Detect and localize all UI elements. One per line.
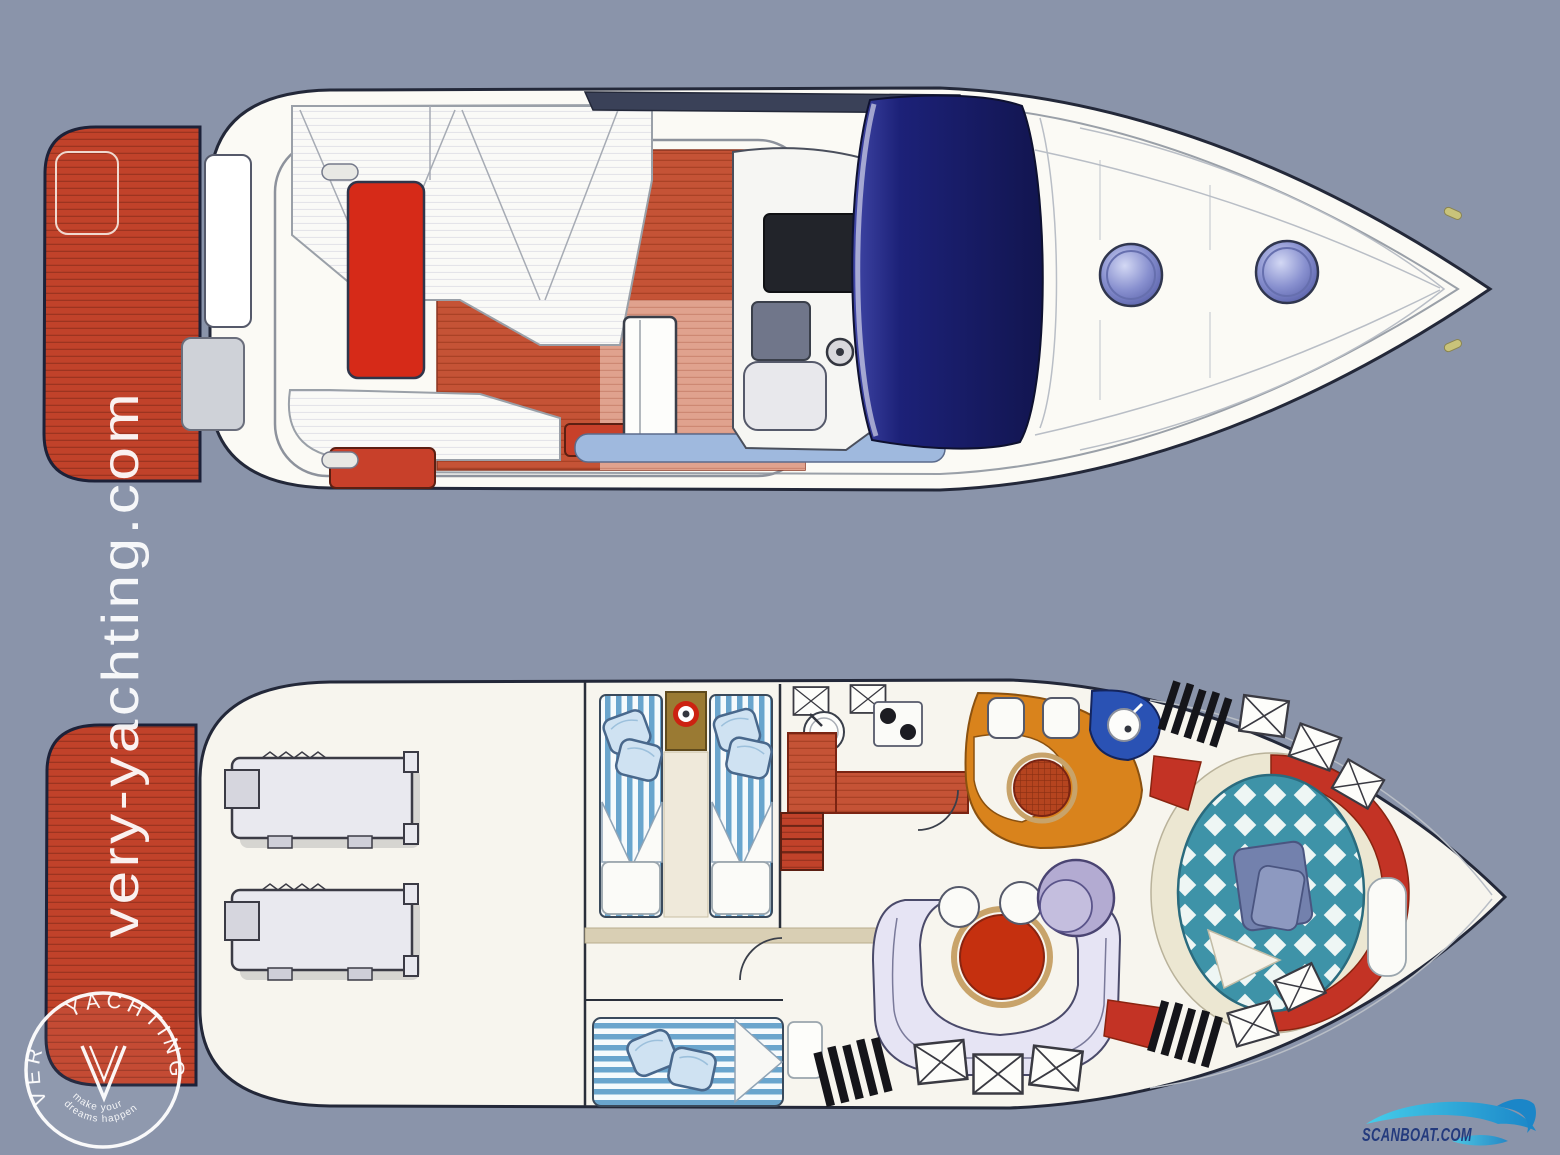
- dinette-chair: [1043, 698, 1079, 738]
- salon-stool: [1000, 882, 1042, 924]
- master-bed-pillow: [1250, 864, 1306, 931]
- toilet-dot: [1125, 726, 1132, 733]
- cleat-pill-bottom: [322, 452, 358, 468]
- helm-wheel-hub: [836, 348, 844, 356]
- bed-foot-cushion: [602, 862, 660, 914]
- locker-x-panel: [1239, 695, 1289, 737]
- transom-door-white: [205, 155, 251, 327]
- locker-x-panel: [1029, 1046, 1082, 1091]
- locker-x-panel: [794, 687, 829, 715]
- transom-locker-gray: [182, 338, 244, 430]
- aft-cabin-side-panel: [788, 1022, 822, 1078]
- stove-burner-icon: [900, 724, 916, 740]
- engine-starboard: [225, 884, 420, 980]
- locker-x-panel: [915, 1040, 968, 1084]
- porthole-icon: [1100, 244, 1162, 306]
- porthole-icon: [1256, 241, 1318, 303]
- engine-port: [225, 752, 420, 848]
- scanboat-wordmark: SCANBOAT.COM: [1362, 1125, 1472, 1145]
- swivel-chair-cushion: [1040, 880, 1092, 932]
- companionway-steps-red: [781, 813, 823, 870]
- salon-table: [960, 915, 1044, 999]
- stove-burner-icon: [880, 708, 896, 724]
- watermark-site-url: very-yachting.com: [92, 390, 150, 938]
- pillow: [725, 736, 774, 780]
- screenshot-root: very-yachting.com VERY YACHTING make you…: [0, 0, 1560, 1155]
- cockpit-sunpad-red: [348, 182, 424, 378]
- pillow: [667, 1046, 718, 1092]
- corridor-floor: [585, 928, 900, 943]
- cabin-aisle-runner: [664, 752, 708, 917]
- salon-stool: [939, 887, 979, 927]
- nightstand-lamp-dot: [683, 711, 690, 718]
- cleat-pill-top: [322, 164, 358, 180]
- toilet-icon: [1108, 709, 1140, 741]
- cabin-door-open: [624, 317, 676, 447]
- helm-screen: [764, 214, 860, 292]
- windshield-navy: [852, 95, 1043, 448]
- dinette-table: [1014, 760, 1070, 816]
- dinette-chair: [988, 698, 1024, 738]
- locker-x-panel: [974, 1055, 1023, 1094]
- master-side-shelf: [1368, 878, 1406, 976]
- yacht-floorplan-canvas: very-yachting.com VERY YACHTING make you…: [0, 0, 1560, 1155]
- stove-top: [874, 702, 922, 746]
- bed-foot-cushion: [712, 862, 770, 914]
- helm-seat: [752, 302, 810, 360]
- helm-seat-base: [744, 362, 826, 430]
